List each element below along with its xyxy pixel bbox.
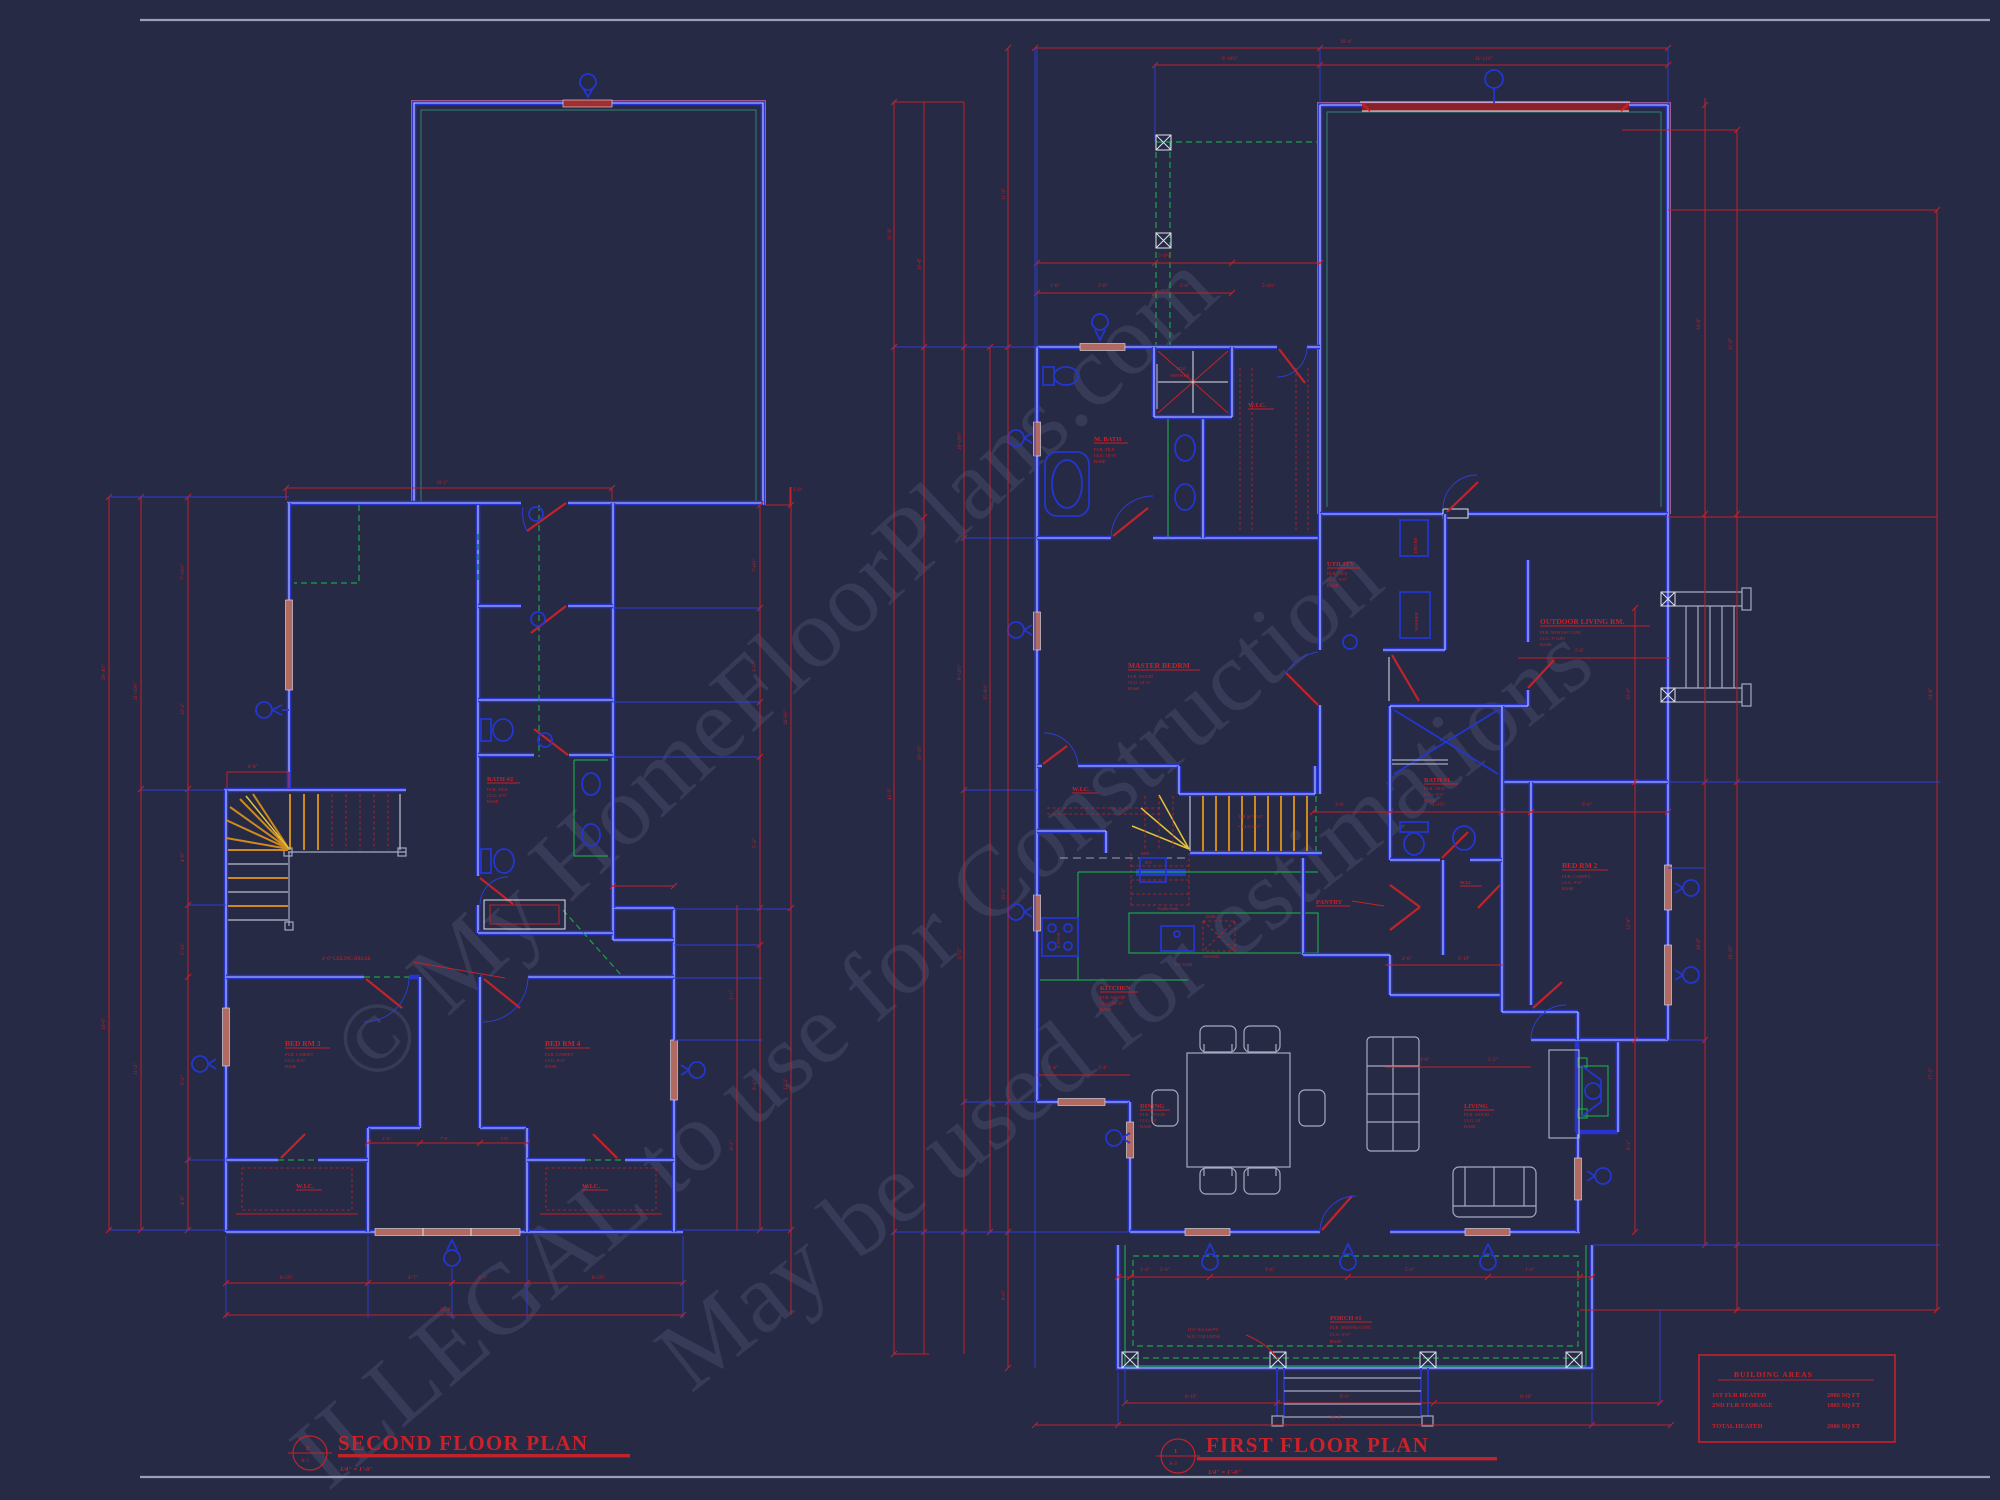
svg-text:DINING: DINING (1140, 1103, 1164, 1110)
svg-text:16'-1": 16'-1" (436, 481, 448, 486)
svg-text:FLR: WOOD: FLR: WOOD (1100, 995, 1126, 1000)
svg-text:M. BATH: M. BATH (1094, 436, 1121, 443)
svg-text:10'-0": 10'-0" (1627, 688, 1632, 700)
svg-text:CLG: 10'-0": CLG: 10'-0" (1100, 1001, 1123, 1006)
svg-text:11'-4": 11'-4" (1002, 188, 1007, 200)
svg-text:21'-10½": 21'-10½" (134, 682, 139, 700)
svg-text:21'-0": 21'-0" (1729, 338, 1734, 350)
svg-text:FIRST FLOOR PLAN: FIRST FLOOR PLAN (1206, 1433, 1429, 1457)
svg-text:30'-10": 30'-10" (918, 745, 923, 760)
svg-text:BATH #1: BATH #1 (1424, 777, 1450, 784)
svg-text:FLR: 5000 PSI CONC: FLR: 5000 PSI CONC (1330, 1325, 1372, 1330)
svg-text:36'-4": 36'-4" (1330, 1416, 1342, 1421)
svg-text:BASE: BASE (487, 799, 499, 804)
svg-text:CLG: 10': CLG: 10' (1140, 1118, 1157, 1123)
svg-text:42'-0": 42'-0" (888, 788, 893, 800)
svg-text:KITCHEN: KITCHEN (1100, 985, 1131, 992)
svg-text:6'-2": 6'-2" (730, 1140, 735, 1150)
svg-text:WASHER: WASHER (1414, 611, 1419, 631)
svg-text:OUTDOOR LIVING RM.: OUTDOOR LIVING RM. (1540, 617, 1625, 626)
svg-text:FLR: WOOD: FLR: WOOD (1140, 1112, 1166, 1117)
svg-text:6'-10½": 6'-10½" (1222, 57, 1238, 62)
svg-text:12'-2": 12'-2" (784, 1078, 789, 1090)
svg-text:6'-0": 6'-0" (1582, 803, 1592, 808)
svg-text:W.I.C.: W.I.C. (1072, 786, 1090, 793)
svg-text:BASE: BASE (1128, 686, 1140, 691)
svg-text:16'-10": 16'-10" (784, 710, 789, 725)
svg-text:29'-8": 29'-8" (440, 1308, 452, 1313)
svg-text:2: 2 (306, 1445, 309, 1452)
svg-text:5'-2": 5'-2" (1488, 1058, 1498, 1063)
svg-text:BED RM 3: BED RM 3 (285, 1039, 321, 1048)
svg-text:36'-4": 36'-4" (1340, 40, 1352, 45)
svg-text:1'-4": 1'-4" (1525, 1268, 1535, 1273)
svg-text:W.I.C.: W.I.C. (1248, 402, 1266, 409)
svg-text:3'-0": 3'-0" (753, 662, 758, 672)
svg-text:FLR: TILE: FLR: TILE (487, 787, 508, 792)
svg-text:1ST FLR HEATED: 1ST FLR HEATED (1712, 1392, 1767, 1399)
svg-text:1/4" = 1'-0": 1/4" = 1'-0" (340, 1466, 373, 1473)
svg-text:16'-10½": 16'-10½" (958, 432, 963, 450)
svg-text:FLR: WOOD: FLR: WOOD (1464, 1112, 1490, 1117)
svg-text:(WASH): (WASH) (1203, 954, 1220, 959)
svg-text:KaBarSink: KaBarSink (1158, 906, 1179, 911)
svg-text:1'-0": 1'-0" (793, 488, 803, 493)
svg-text:PORCH #1: PORCH #1 (1330, 1315, 1362, 1322)
svg-text:LIVING: LIVING (1464, 1103, 1488, 1110)
svg-text:8'-5½": 8'-5½" (280, 1276, 293, 1281)
svg-text:1'-6": 1'-6" (382, 1136, 391, 1141)
svg-text:1/4" = 1'-0": 1/4" = 1'-0" (1208, 1469, 1241, 1476)
svg-text:1085 SQ FT: 1085 SQ FT (1827, 1402, 1861, 1409)
svg-text:10'-2": 10'-2" (181, 703, 186, 715)
svg-text:5'-3": 5'-3" (478, 1276, 488, 1281)
svg-text:CLG: 9'-0": CLG: 9'-0" (1424, 792, 1445, 797)
svg-text:7'-10½": 7'-10½" (181, 564, 186, 580)
svg-text:BED RM 2: BED RM 2 (1562, 861, 1598, 870)
svg-text:3'-10": 3'-10" (1458, 957, 1470, 962)
svg-text:BED RM 4: BED RM 4 (545, 1039, 581, 1048)
svg-text:15'-6½": 15'-6½" (984, 684, 989, 700)
svg-text:CLG: 9'-0": CLG: 9'-0" (1562, 880, 1583, 885)
svg-text:18R @ 7 3/4": 18R @ 7 3/4" (1238, 814, 1264, 819)
svg-text:W.I.C.: W.I.C. (1460, 880, 1473, 885)
svg-text:6'-10": 6'-10" (1520, 1395, 1532, 1400)
svg-text:CLG: 10'-0": CLG: 10'-0" (1128, 680, 1151, 685)
svg-text:2'-6": 2'-6" (1402, 957, 1412, 962)
svg-text:MASTER BEDRM: MASTER BEDRM (1128, 661, 1190, 670)
svg-text:4'-0" CEILING BREAK: 4'-0" CEILING BREAK (322, 957, 371, 962)
svg-text:TILE: TILE (1176, 366, 1186, 371)
svg-text:5'-4": 5'-4" (1405, 1268, 1415, 1273)
svg-text:34'-6": 34'-6" (1697, 318, 1702, 330)
svg-text:16'-10": 16'-10" (1729, 945, 1734, 960)
svg-text:1'-4": 1'-4" (1140, 1268, 1150, 1273)
svg-text:BASE: BASE (1464, 1124, 1476, 1129)
svg-text:5'-4": 5'-4" (753, 838, 758, 848)
svg-text:9'-2": 9'-2" (181, 1075, 186, 1085)
svg-text:3'-4": 3'-4" (1048, 1066, 1058, 1071)
svg-text:BASE: BASE (1562, 886, 1574, 891)
svg-text:FLR: TILE: FLR: TILE (1424, 786, 1445, 791)
svg-text:FLR: 5000 PSI CONC: FLR: 5000 PSI CONC (1540, 630, 1582, 635)
svg-text:SHOWER: SHOWER (1170, 373, 1190, 378)
svg-text:7'-6½": 7'-6½" (753, 559, 758, 572)
svg-text:3'-6": 3'-6" (1335, 803, 1345, 808)
svg-text:CLG: 9'-0": CLG: 9'-0" (1327, 577, 1348, 582)
svg-text:1'-6": 1'-6" (500, 1136, 509, 1141)
svg-text:BASE: BASE (285, 1064, 297, 1069)
svg-text:UTILITY: UTILITY (1327, 561, 1355, 568)
svg-text:= CLG 9'-1": = CLG 9'-1" (1238, 824, 1261, 829)
svg-text:DN: DN (1145, 860, 1152, 865)
svg-text:BUILDING AREAS: BUILDING AREAS (1734, 1370, 1813, 1379)
svg-text:7'-6": 7'-6" (440, 1136, 449, 1141)
svg-text:A-3: A-3 (301, 1459, 309, 1464)
svg-text:CLG: 10': CLG: 10' (1464, 1118, 1481, 1123)
svg-text:BASE: BASE (1094, 459, 1106, 464)
svg-text:W.D. COLUMNS: W.D. COLUMNS (1187, 1334, 1221, 1339)
svg-text:BASE: BASE (1540, 642, 1552, 647)
svg-text:FLR: TILE: FLR: TILE (1094, 447, 1115, 452)
svg-text:11'-2": 11'-2" (958, 948, 963, 960)
svg-text:5'-0": 5'-0" (1575, 649, 1585, 654)
svg-text:9'-4": 9'-4" (753, 1080, 758, 1090)
svg-text:2ND FLR STORAGE: 2ND FLR STORAGE (1712, 1402, 1773, 1409)
svg-text:CLG: 10'-0": CLG: 10'-0" (1094, 453, 1117, 458)
svg-text:8'-0": 8'-0" (1340, 1395, 1350, 1400)
svg-text:1'-0": 1'-0" (1050, 284, 1060, 289)
svg-text:BATH #2: BATH #2 (487, 776, 513, 783)
svg-text:4'-8": 4'-8" (248, 765, 258, 770)
svg-text:SECOND FLOOR PLAN: SECOND FLOOR PLAN (338, 1431, 588, 1455)
svg-text:5'-1½": 5'-1½" (1432, 803, 1445, 808)
svg-text:W.I.C.: W.I.C. (582, 1183, 600, 1190)
svg-text:8'-2": 8'-2" (1627, 1140, 1632, 1150)
svg-text:CLG: 9'-0": CLG: 9'-0" (1330, 1332, 1351, 1337)
svg-text:26'-0": 26'-0" (1697, 938, 1702, 950)
svg-text:DRYER: DRYER (1413, 537, 1418, 553)
svg-text:11½" SQ 2x6 PT: 11½" SQ 2x6 PT (1187, 1327, 1219, 1332)
svg-text:5'-4½": 5'-4½" (1262, 284, 1275, 289)
svg-text:BASE: BASE (1330, 1339, 1342, 1344)
svg-text:1830CL: 1830CL (1205, 914, 1220, 919)
svg-text:10'-8": 10'-8" (918, 258, 923, 270)
svg-text:3'-1": 3'-1" (730, 990, 735, 1000)
svg-text:2'-4": 2'-4" (1098, 1066, 1108, 1071)
svg-text:4'-9": 4'-9" (181, 1195, 186, 1205)
svg-text:3'-8": 3'-8" (1420, 1058, 1430, 1063)
svg-text:11'-4": 11'-4" (888, 228, 893, 240)
svg-text:W.I.C.: W.I.C. (296, 1183, 314, 1190)
svg-text:9'-8": 9'-8" (1265, 1268, 1275, 1273)
svg-text:8'-0": 8'-0" (1002, 1290, 1007, 1300)
svg-text:BASE: BASE (545, 1064, 557, 1069)
svg-text:8'-5½": 8'-5½" (592, 1276, 605, 1281)
svg-text:ISLAND: ISLAND (1175, 962, 1193, 967)
svg-text:4'-7": 4'-7" (408, 1276, 418, 1281)
svg-text:16'-0": 16'-0" (102, 1018, 107, 1030)
svg-text:FLR: CARPET: FLR: CARPET (1562, 874, 1591, 879)
svg-text:CLG: 8'-0": CLG: 8'-0" (487, 793, 508, 798)
svg-text:1: 1 (1174, 1448, 1177, 1455)
svg-text:PANTRY: PANTRY (1316, 899, 1343, 906)
svg-text:BASE: BASE (1327, 583, 1339, 588)
svg-text:CLG: 8'-0": CLG: 8'-0" (285, 1058, 306, 1063)
svg-text:34'-6": 34'-6" (1929, 688, 1934, 700)
svg-text:6'-10": 6'-10" (1185, 1395, 1197, 1400)
svg-text:2'-8": 2'-8" (1098, 284, 1108, 289)
svg-text:4'-8": 4'-8" (181, 852, 186, 862)
svg-text:12'-6": 12'-6" (1627, 918, 1632, 930)
svg-text:FLR: CARPET: FLR: CARPET (285, 1052, 314, 1057)
svg-text:5'-10": 5'-10" (181, 943, 186, 955)
svg-text:2'-8": 2'-8" (1180, 284, 1190, 289)
svg-text:2086 SQ FT: 2086 SQ FT (1827, 1423, 1861, 1430)
svg-text:2086 SQ FT: 2086 SQ FT (1827, 1392, 1861, 1399)
svg-text:BASE: BASE (1140, 1124, 1152, 1129)
svg-text:RANGE: RANGE (1056, 932, 1061, 948)
svg-text:CLG: V-GRV: CLG: V-GRV (1540, 636, 1566, 641)
svg-text:FLR: WOOD: FLR: WOOD (1128, 674, 1154, 679)
svg-text:A-3: A-3 (1169, 1462, 1177, 1467)
svg-text:TOTAL HEATED: TOTAL HEATED (1712, 1423, 1763, 1430)
svg-text:8'-11½": 8'-11½" (958, 664, 963, 680)
svg-text:28'-4½": 28'-4½" (102, 664, 107, 680)
svg-text:FLR: TILE: FLR: TILE (1327, 571, 1348, 576)
svg-text:REF.: REF. (1141, 851, 1150, 856)
svg-text:31'-11½": 31'-11½" (1475, 57, 1493, 62)
svg-text:19'-0": 19'-0" (1002, 888, 1007, 900)
svg-text:5'-4½": 5'-4½" (1158, 254, 1171, 259)
svg-text:BASE: BASE (1100, 1007, 1112, 1012)
svg-text:5'-8": 5'-8" (1160, 1268, 1170, 1273)
svg-text:FLR: CARPET: FLR: CARPET (545, 1052, 574, 1057)
svg-text:CLG: 8'-0": CLG: 8'-0" (545, 1058, 566, 1063)
svg-text:11'-2": 11'-2" (134, 1063, 139, 1075)
svg-text:17'-3": 17'-3" (1929, 1068, 1934, 1080)
